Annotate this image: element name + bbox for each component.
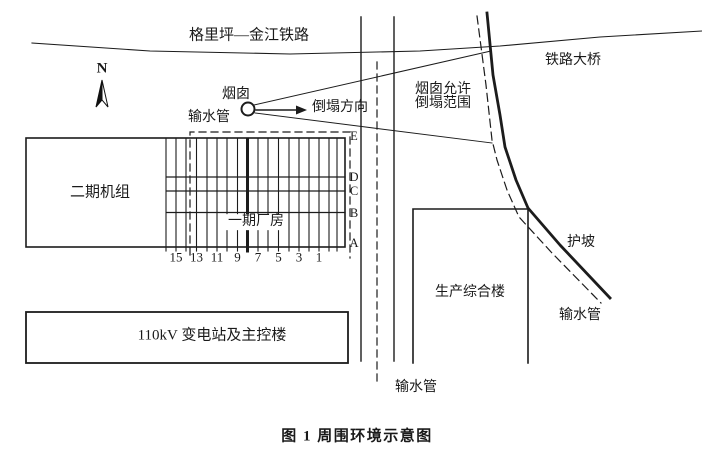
row-letter: B — [350, 206, 358, 220]
railway-line — [32, 31, 702, 54]
slope-protection-label: 护坡 — [567, 235, 595, 251]
column-number: 1 — [316, 251, 323, 266]
figure-caption: 图 1 周围环境示意图 — [281, 429, 433, 446]
column-number: 13 — [190, 251, 203, 266]
water-pipe-dashed-around-plant — [190, 132, 350, 258]
column-number: 15 — [170, 251, 183, 266]
north-needle-icon-half — [102, 80, 108, 107]
chimney-symbol — [242, 103, 255, 116]
collapse-direction-arrow-head — [296, 106, 307, 115]
row-letter: E — [350, 129, 358, 143]
production-building-label: 生产综合楼 — [435, 285, 505, 301]
water-pipe-right-label: 输水管 — [559, 308, 601, 324]
column-number: 5 — [275, 251, 282, 266]
column-number: 3 — [296, 251, 303, 266]
phase1-column-grid — [166, 139, 337, 251]
column-number: 11 — [211, 251, 224, 266]
row-letter: A — [349, 236, 358, 250]
water-pipe-bottom-label: 输水管 — [395, 380, 437, 396]
railway-label: 格里坪—金江铁路 — [189, 28, 309, 45]
chimney-label: 烟囱 — [222, 87, 250, 103]
column-number: 7 — [255, 251, 262, 266]
north-needle-icon — [96, 80, 102, 107]
water-pipe-top-label: 输水管 — [188, 110, 230, 126]
row-letter: D — [349, 170, 358, 184]
phase1-plant-label: 一期厂房 — [225, 214, 287, 230]
phase2-units-label: 二期机组 — [70, 185, 130, 202]
collapse-direction-label: 倒塌方向 — [312, 100, 368, 116]
collapse-range-label-line2: 倒塌范围 — [415, 96, 471, 112]
column-number: 9 — [234, 251, 241, 266]
north-label: N — [97, 61, 108, 78]
row-letter: C — [350, 184, 358, 198]
substation-label: 110kV 变电站及主控楼 — [138, 328, 287, 345]
site-plan-figure: 格里坪—金江铁路 铁路大桥 N 烟囱 输水管 倒塌方向 烟囱允许 倒塌范围 二期… — [0, 0, 702, 462]
railway-bridge-label: 铁路大桥 — [545, 53, 601, 69]
